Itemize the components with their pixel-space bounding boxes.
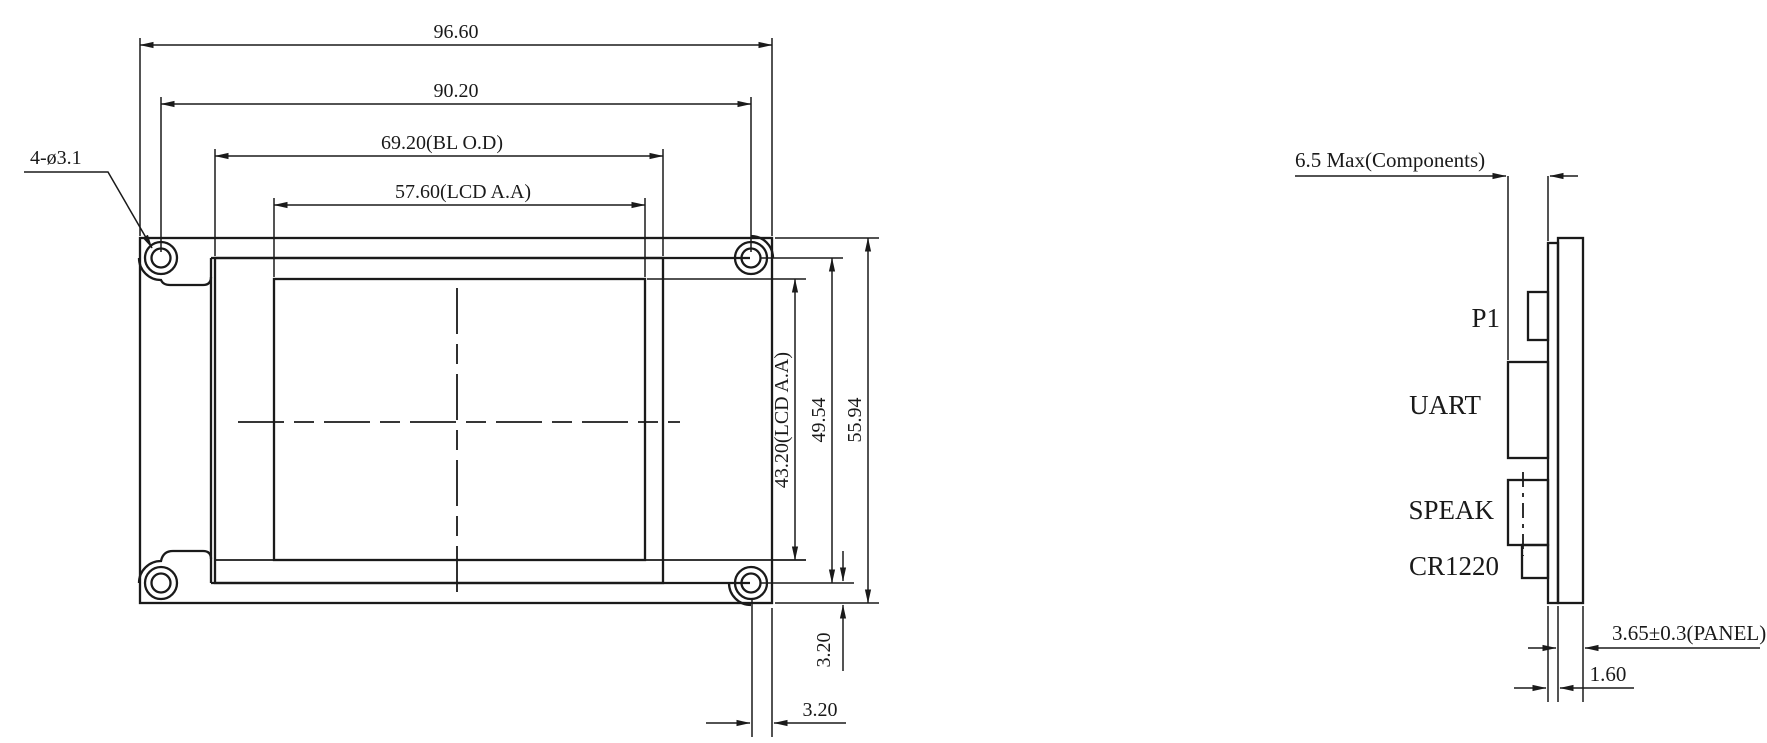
lcd-mechanical-drawing: 96.60 90.20 69.20(BL O.D) 57.60(LCD A.A)… bbox=[0, 0, 1767, 743]
front-view: 96.60 90.20 69.20(BL O.D) 57.60(LCD A.A)… bbox=[24, 21, 879, 737]
speaker-outline bbox=[1508, 480, 1548, 545]
battery-holder-outline bbox=[1522, 545, 1548, 578]
dim-active-area-width: 57.60(LCD A.A) bbox=[274, 181, 645, 277]
callout-mounting-holes: 4-ø3.1 bbox=[24, 147, 152, 248]
dim-pcb-thickness: 1.60 bbox=[1514, 662, 1634, 688]
speaker-label: SPEAK bbox=[1408, 495, 1494, 525]
active-area-outline bbox=[274, 279, 645, 560]
corner-ear-top-left bbox=[139, 258, 211, 285]
dim-components-height-label: 6.5 Max(Components) bbox=[1295, 148, 1485, 172]
uart-label: UART bbox=[1409, 390, 1481, 420]
callout-mounting-holes-label: 4-ø3.1 bbox=[30, 147, 82, 169]
dim-panel-thickness-label: 3.65±0.3(PANEL) bbox=[1612, 621, 1766, 645]
board-outline bbox=[140, 238, 772, 603]
dim-hole-offset-right: 3.20 bbox=[706, 600, 846, 737]
battery-label: CR1220 bbox=[1409, 551, 1499, 581]
panel-outline bbox=[1558, 238, 1583, 603]
mounting-hole-bottom-left bbox=[145, 567, 177, 599]
pcb-outline bbox=[1548, 243, 1558, 603]
dim-hole-offset-right-label: 3.20 bbox=[803, 699, 838, 721]
p1-connector-outline bbox=[1528, 292, 1548, 340]
dim-components-height: 6.5 Max(Components) bbox=[1295, 148, 1578, 360]
side-view: 6.5 Max(Components) 3.65±0.3(PANEL) 1.60… bbox=[1295, 148, 1766, 702]
uart-connector-outline bbox=[1508, 362, 1548, 458]
bezel-window-outline bbox=[215, 258, 663, 583]
drawing-canvas: 96.60 90.20 69.20(BL O.D) 57.60(LCD A.A)… bbox=[0, 0, 1767, 743]
dim-backlight-width-label: 69.20(BL O.D) bbox=[381, 132, 503, 154]
dim-active-area-width-label: 57.60(LCD A.A) bbox=[395, 181, 531, 203]
dim-hole-offset-bottom-label: 3.20 bbox=[813, 633, 835, 668]
p1-label: P1 bbox=[1471, 303, 1500, 333]
dim-outer-width: 96.60 bbox=[140, 21, 772, 236]
dim-active-area-height-label: 43.20(LCD A.A) bbox=[771, 352, 793, 488]
dim-panel-thickness: 3.65±0.3(PANEL) bbox=[1528, 621, 1766, 648]
dim-outer-height-label: 55.94 bbox=[844, 398, 866, 443]
dim-outer-width-label: 96.60 bbox=[434, 21, 479, 43]
dim-hole-offset-bottom: 3.20 bbox=[813, 551, 843, 671]
dim-pcb-thickness-label: 1.60 bbox=[1590, 662, 1627, 686]
dim-hole-spacing-h-label: 90.20 bbox=[434, 80, 479, 102]
corner-ear-bottom-left bbox=[139, 551, 211, 583]
dim-active-area-height: 43.20(LCD A.A) bbox=[647, 279, 806, 560]
dim-hole-spacing-v-label: 49.54 bbox=[808, 398, 830, 443]
